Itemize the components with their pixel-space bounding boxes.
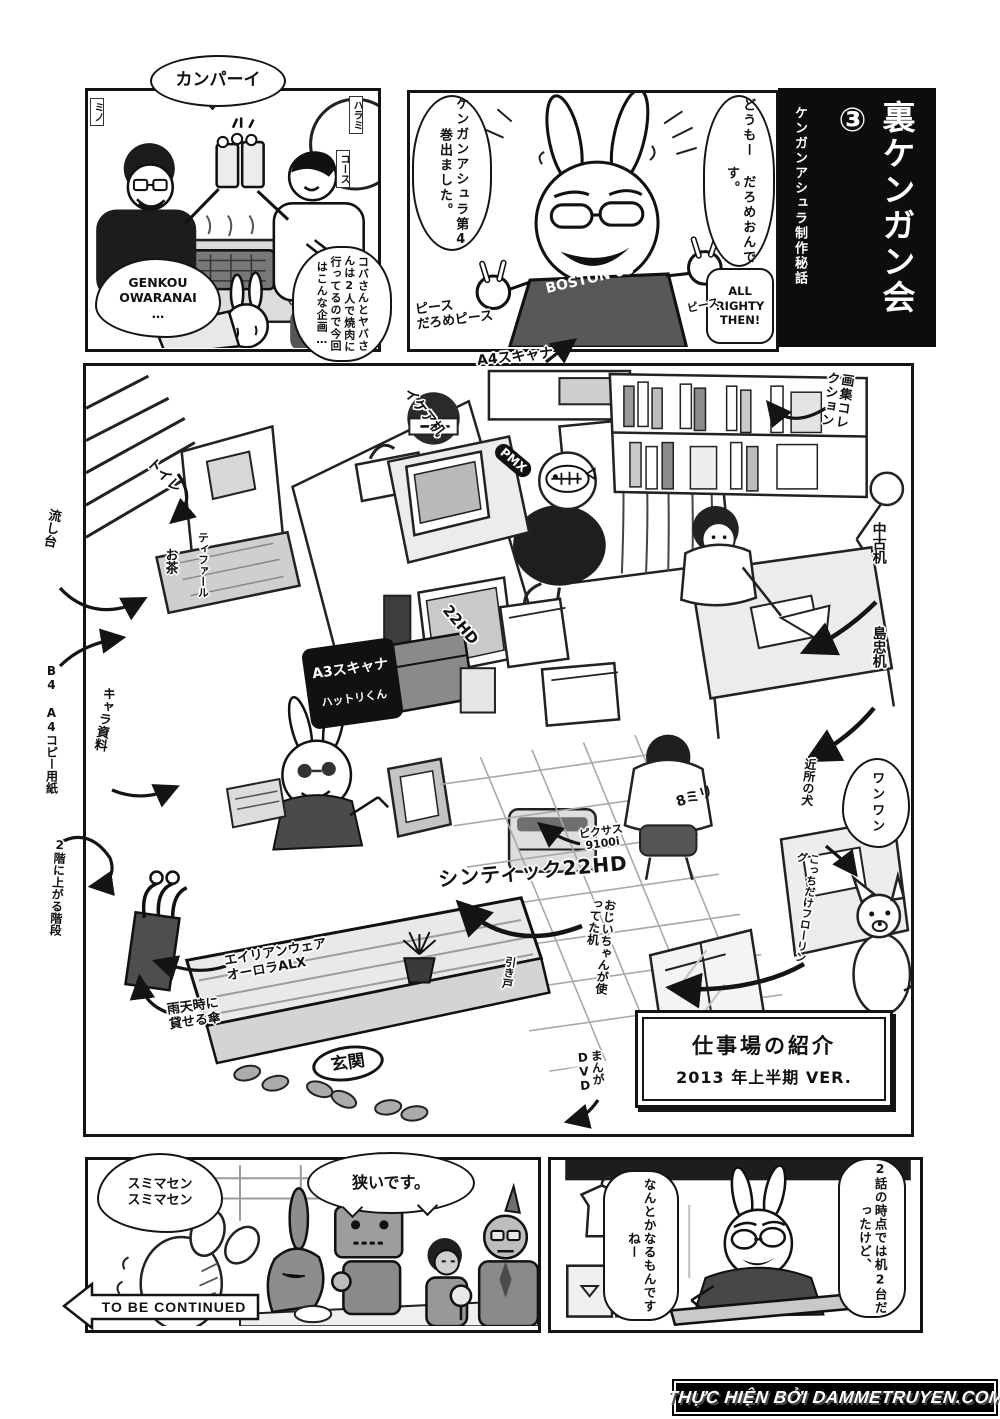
menu-sign-mino: ミノ	[90, 98, 104, 126]
shout-bubble: カンパーイ	[150, 55, 286, 107]
sorry-text: スミマセン スミマセン	[127, 1177, 192, 1210]
shout-text: カンパーイ	[176, 70, 261, 91]
watermark-bar: THỰC HIỆN BỞI DAMMETRUYEN.COM	[672, 1379, 998, 1416]
cardboard-boxes	[500, 599, 619, 726]
workspace-sign: 仕事場の紹介 2013 年上半期 VER.	[635, 1010, 893, 1108]
koba-text: コバさんとヤバさんは2人で焼肉に行ってるので今回はこんな企画…	[315, 253, 370, 355]
menu-sign-harami: ハラミ	[349, 96, 363, 134]
woof-bubble: ワンワン	[842, 758, 910, 848]
a3-scanner-line1: A3スキャナ	[311, 657, 389, 683]
label-used-desk: 中古机	[870, 522, 886, 602]
a3-scanner-line2: ハットリくん	[316, 688, 394, 711]
workspace-sign-title: 仕事場の紹介	[692, 1030, 836, 1060]
book-text: ケンガンアシュラ第4巻出ました。	[436, 97, 469, 249]
speed-lines	[485, 109, 696, 164]
title-block: 裏ケンガン会③ ケンガンアシュラ制作秘話	[778, 88, 936, 347]
umbrella-stand	[125, 872, 186, 991]
cintiq-display	[388, 759, 450, 837]
workspace-sign-inner: 仕事場の紹介 2013 年上半期 VER.	[642, 1017, 886, 1101]
to-be-continued-banner: TO BE CONTINUED	[62, 1282, 262, 1330]
beer-mugs	[217, 118, 264, 187]
label-manga-dvd: まんがDVD	[575, 1049, 608, 1125]
narrow-text: 狭いです。	[352, 1173, 430, 1193]
label-stairs: 2階に上がる階段	[43, 838, 66, 1016]
koba-bubble: コバさんとヤバさんは2人で焼肉に行ってるので今回はこんな企画…	[292, 246, 392, 362]
label-a3-scanner: A3スキャナ ハットリくん	[301, 637, 404, 730]
narrow-bubble: 狭いです。	[307, 1152, 475, 1214]
genkou-text: GENKOU OWARANAI …	[119, 275, 197, 322]
keyboard	[227, 779, 285, 827]
desk-count-bubble: 2話の時点では机2台だったけど、	[838, 1158, 906, 1318]
manga-page: 裏ケンガン会③ ケンガンアシュラ制作秘話	[0, 0, 1000, 1419]
label-tea: お茶	[162, 548, 177, 598]
somehow-text: なんとかなるもんですねー	[625, 1172, 656, 1319]
steam	[206, 216, 253, 236]
dog	[854, 876, 911, 1015]
desk-count-text: 2話の時点では机2台だったけど、	[856, 1160, 887, 1316]
greeting-text: どうもー だろめおんです。	[723, 97, 756, 265]
label-copy-paper: B4 A4コピー用紙	[44, 664, 57, 814]
horn-man	[479, 1186, 538, 1326]
rabbit-ear-silhouette	[268, 1188, 331, 1322]
label-shimachu-desk: 島忠机	[870, 626, 886, 706]
label-sink: 流し台	[34, 507, 61, 580]
greeting-bubble: どうもー だろめおんです。	[703, 95, 775, 267]
menu-sign-course: コース	[336, 150, 350, 188]
book-bubble: ケンガンアシュラ第4巻出ました。	[412, 95, 492, 251]
series-title: 裏ケンガン会③	[833, 100, 920, 336]
label-tefal: ティファール	[196, 532, 208, 624]
rabbit-at-desk	[691, 1164, 823, 1317]
watermark-text: THỰC HIỆN BỞI DAMMETRUYEN.COM	[665, 1387, 1000, 1408]
to-be-continued-text: TO BE CONTINUED	[102, 1299, 247, 1315]
workspace-sign-subtitle: 2013 年上半期 VER.	[676, 1064, 852, 1088]
series-subtitle: ケンガンアシュラ制作秘話	[790, 106, 809, 330]
somehow-bubble: なんとかなるもんですねー	[603, 1170, 679, 1321]
window-item	[559, 378, 611, 404]
woof-text: ワンワン	[868, 771, 884, 835]
